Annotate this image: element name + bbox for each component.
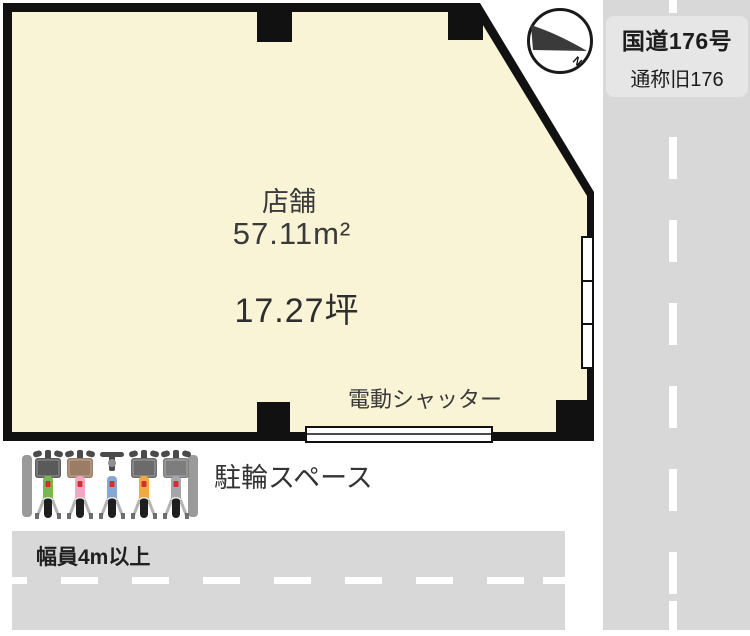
area-tsubo: 17.27坪 xyxy=(234,283,359,332)
pillar-bottom xyxy=(257,402,290,434)
road-name-line1: 国道176号 xyxy=(622,22,732,56)
road-name-line2: 通称旧176 xyxy=(630,63,723,92)
side-window xyxy=(582,237,593,368)
area-square-meters: 57.11m² xyxy=(233,216,351,252)
bicycle-icon xyxy=(160,450,191,519)
parking-post xyxy=(22,455,32,517)
bicycle-icon xyxy=(32,450,63,519)
floor-plan: 幅員4m以上 国道176号 通称旧176 N 店舗 57.11m² 17.27坪… xyxy=(0,0,750,636)
north-arrow-icon: N xyxy=(522,4,600,80)
road-name-label: 国道176号 通称旧176 xyxy=(606,16,748,97)
room-label: 店舗 xyxy=(262,180,316,219)
pillar-top xyxy=(257,10,292,42)
road-width-label: 幅員4m以上 xyxy=(36,541,150,571)
shutter-label: 電動シャッター xyxy=(348,382,502,414)
bicycle-icon xyxy=(64,450,95,519)
bicycle-icon xyxy=(128,450,159,519)
electric-shutter xyxy=(306,427,492,442)
bicycle-space-label: 駐輪スペース xyxy=(214,456,373,495)
bicycle-parking-icons xyxy=(20,446,200,522)
bicycle-icon xyxy=(99,452,125,519)
road-horizontal-center-line xyxy=(12,577,565,584)
pillar-top-right xyxy=(448,10,483,40)
parking-post xyxy=(188,455,198,517)
pillar-bottom-right xyxy=(556,400,591,434)
